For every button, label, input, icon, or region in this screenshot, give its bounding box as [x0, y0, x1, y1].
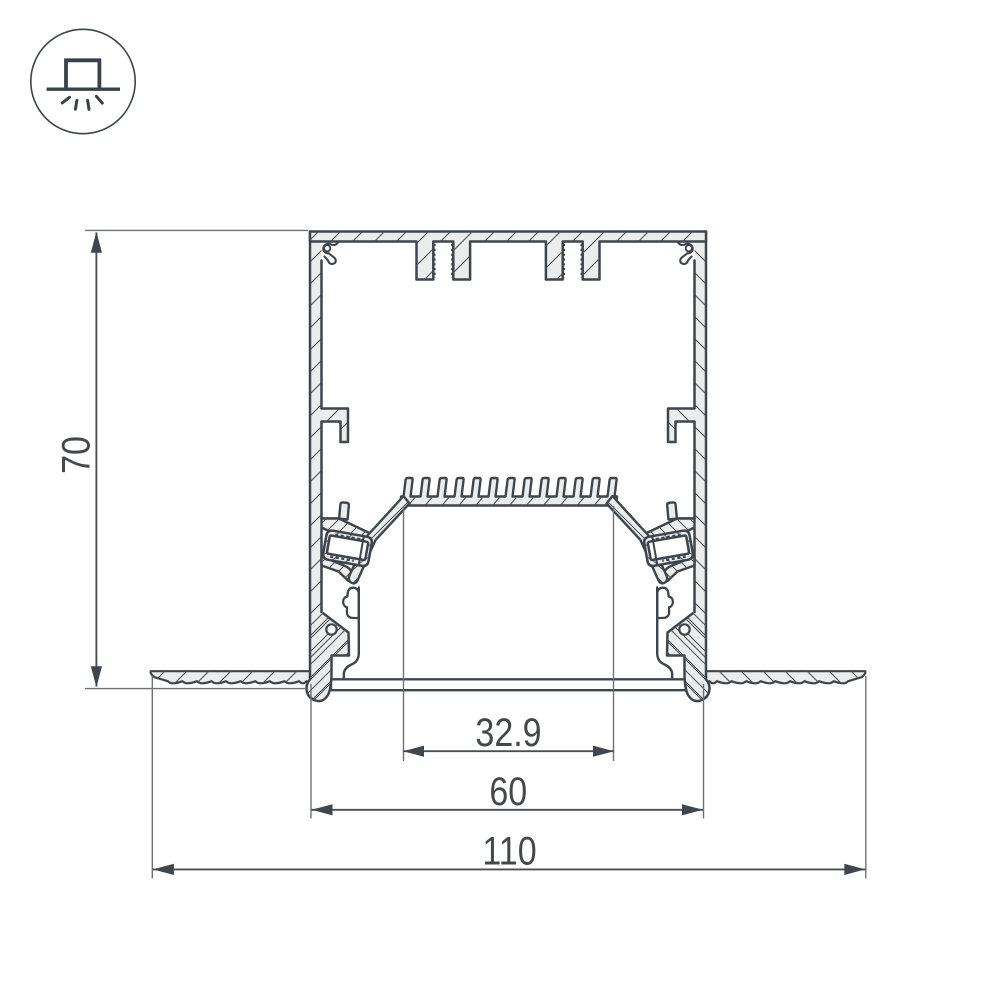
svg-text:110: 110: [482, 828, 536, 873]
svg-text:32.9: 32.9: [475, 710, 541, 755]
svg-text:70: 70: [53, 436, 98, 474]
svg-text:60: 60: [489, 768, 527, 813]
